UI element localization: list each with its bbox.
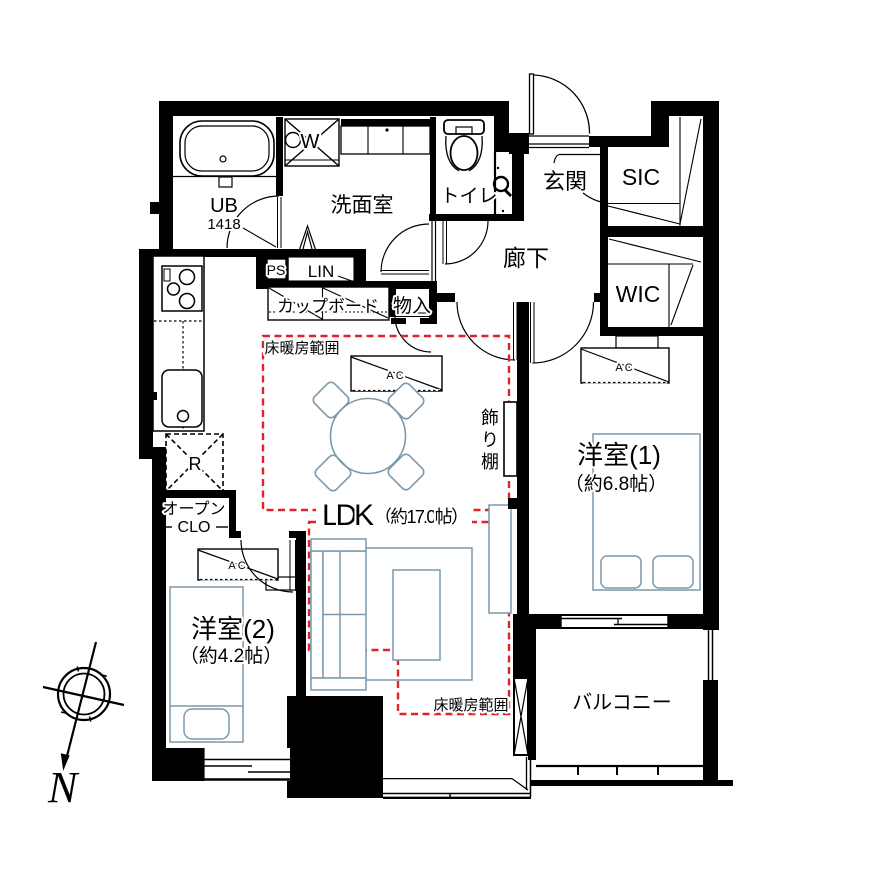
svg-text:LDK: LDK bbox=[322, 499, 374, 532]
svg-text:オープン: オープン bbox=[162, 500, 225, 518]
svg-text:LIN: LIN bbox=[308, 262, 334, 281]
svg-text:（約17.0帖）: （約17.0帖） bbox=[374, 507, 469, 527]
svg-text:N: N bbox=[47, 763, 80, 812]
svg-text:1418: 1418 bbox=[207, 216, 240, 233]
svg-text:玄関: 玄関 bbox=[543, 169, 587, 194]
svg-text:AC: AC bbox=[228, 560, 247, 572]
svg-text:洋室(2): 洋室(2) bbox=[191, 614, 275, 644]
svg-text:廊下: 廊下 bbox=[503, 245, 549, 271]
svg-text:棚: 棚 bbox=[481, 452, 499, 472]
svg-text:り: り bbox=[481, 430, 499, 450]
svg-text:物入: 物入 bbox=[393, 295, 431, 317]
svg-text:床暖房範囲: 床暖房範囲 bbox=[433, 696, 508, 714]
svg-text:AC: AC bbox=[615, 362, 634, 374]
svg-text:床暖房範囲: 床暖房範囲 bbox=[264, 339, 339, 357]
svg-text:WIC: WIC bbox=[616, 281, 661, 307]
svg-text:カップボード: カップボード bbox=[277, 297, 379, 316]
svg-text:洋室(1): 洋室(1) bbox=[577, 440, 661, 470]
svg-text:R: R bbox=[189, 454, 202, 474]
svg-text:CLO: CLO bbox=[178, 519, 211, 536]
svg-text:（約6.8帖）: （約6.8帖） bbox=[565, 473, 667, 495]
svg-text:AC: AC bbox=[386, 370, 405, 382]
svg-text:バルコニー: バルコニー bbox=[572, 692, 672, 714]
svg-text:UB: UB bbox=[210, 195, 238, 217]
svg-text:SIC: SIC bbox=[622, 164, 660, 190]
svg-text:W: W bbox=[301, 131, 320, 153]
svg-text:PS: PS bbox=[267, 262, 286, 278]
svg-text:飾: 飾 bbox=[481, 408, 499, 428]
svg-text:洗面室: 洗面室 bbox=[331, 194, 394, 217]
svg-text:トイレ: トイレ bbox=[440, 186, 497, 207]
svg-text:（約4.2帖）: （約4.2帖） bbox=[180, 645, 282, 667]
